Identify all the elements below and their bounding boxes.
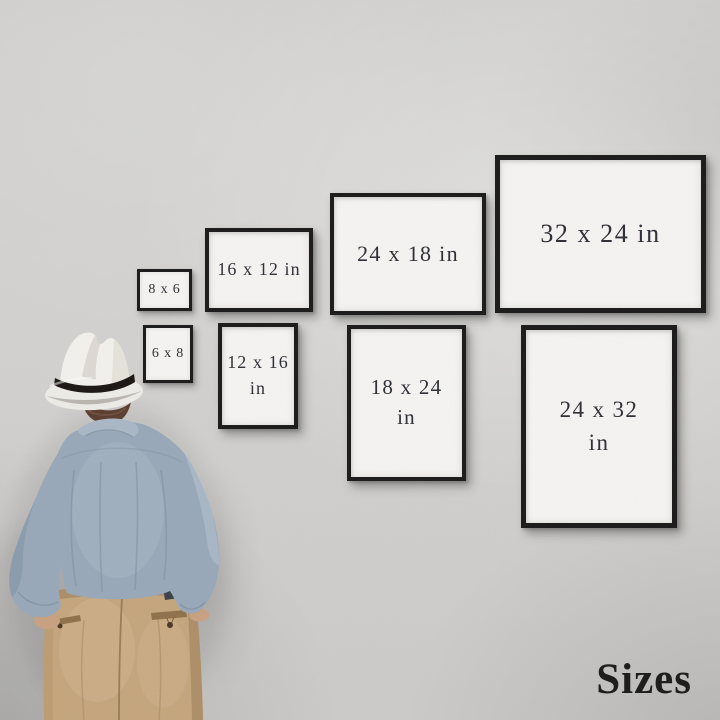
frame-24x32: 24 x 32 in <box>521 325 677 528</box>
frame-32x24: 32 x 24 in <box>495 155 706 313</box>
frame-size-label: 24 x 18 in <box>357 238 459 269</box>
frame-18x24: 18 x 24 in <box>347 325 466 481</box>
fedora-hat <box>44 333 144 413</box>
man-looking-at-wall <box>0 320 240 720</box>
frame-8x6: 8 x 6 <box>137 269 192 311</box>
gallery-wall-scene: 8 x 6 16 x 12 in 24 x 18 in 32 x 24 in 6… <box>0 0 720 720</box>
frame-size-label: 16 x 12 in <box>217 257 300 283</box>
frame-24x18: 24 x 18 in <box>330 193 486 315</box>
frame-size-unit: in <box>250 376 266 402</box>
frame-16x12: 16 x 12 in <box>205 228 313 312</box>
frame-size-label: 24 x 32 <box>560 394 639 427</box>
frame-size-label: 8 x 6 <box>148 280 180 300</box>
frame-size-label: 32 x 24 in <box>540 216 660 253</box>
frame-size-label: 18 x 24 <box>371 373 443 403</box>
frame-size-unit: in <box>589 427 610 460</box>
sizes-watermark: Sizes <box>596 655 692 704</box>
frame-size-unit: in <box>397 403 416 433</box>
